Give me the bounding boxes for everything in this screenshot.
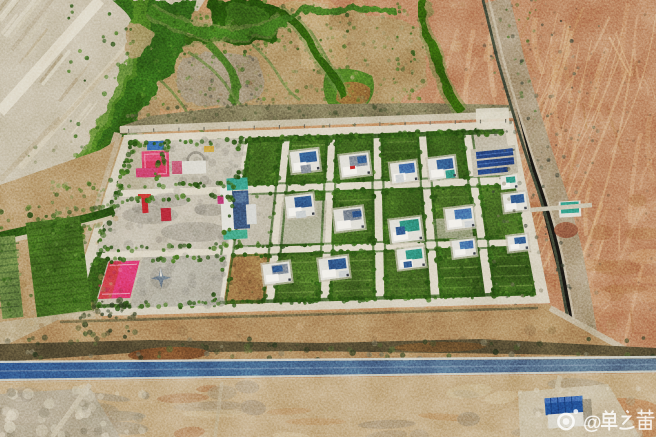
svg-text:@: @ xyxy=(583,413,602,434)
